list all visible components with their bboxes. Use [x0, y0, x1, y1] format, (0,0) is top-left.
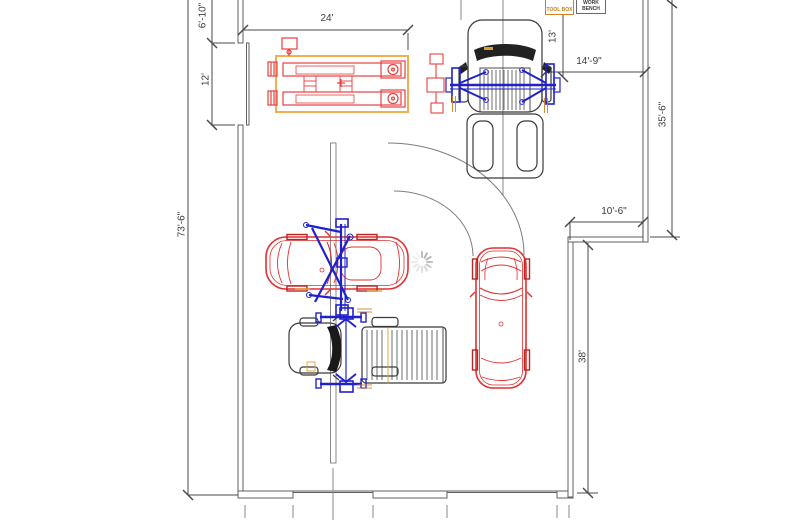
wheel: [300, 318, 318, 326]
mirror-left: [470, 292, 475, 297]
pickup-truck-top: [458, 20, 552, 178]
pickup-truck-bottom: [289, 316, 446, 384]
rolling-jack: [427, 54, 444, 113]
mirror-left: [325, 231, 330, 236]
cad-floorplan-viewer[interactable]: 24' 6'-10" 12' 73'-6" 13' 14'-9" 35'-6" …: [0, 0, 795, 520]
dim-label-24ft: 24': [312, 13, 342, 24]
truck-bed: [362, 327, 446, 383]
dim-label-6-10: 6'-10": [198, 0, 209, 38]
mirror-right: [527, 292, 532, 297]
lift-capacity-label: [357, 309, 372, 388]
wheel: [372, 318, 398, 327]
wheel: [517, 121, 537, 171]
dim-label-10-6: 10'-6": [592, 206, 636, 217]
drive-path-arcs: [388, 143, 524, 256]
truck-bed: [467, 114, 543, 178]
walls: [238, 0, 648, 498]
interior-wall: [331, 143, 337, 463]
wheel: [473, 121, 493, 171]
mirror-right: [325, 290, 330, 295]
lift-control-box: [282, 38, 297, 49]
dim-label-12ft: 12': [201, 65, 212, 95]
garage-door-bottom-2: [447, 491, 557, 493]
garage-door-left: [247, 43, 250, 125]
wheel: [372, 367, 398, 376]
dim-label-73-6: 73'-6": [177, 203, 188, 247]
sedan-red: [470, 248, 532, 388]
floor-plan-canvas: [0, 0, 795, 520]
dim-label-35-6: 35'-6": [658, 93, 669, 137]
loading-spinner-icon: [412, 252, 432, 272]
toolbox-label: TOOL BOX: [545, 0, 574, 15]
dim-label-38ft: 38': [578, 344, 589, 370]
four-post-lift: [268, 38, 408, 112]
workbench-label: WORK BENCH: [576, 0, 606, 14]
dim-label-14-9: 14'-9": [567, 56, 611, 67]
two-post-lift-bottom: [316, 308, 372, 392]
dim-label-13ft: 13': [548, 24, 559, 50]
